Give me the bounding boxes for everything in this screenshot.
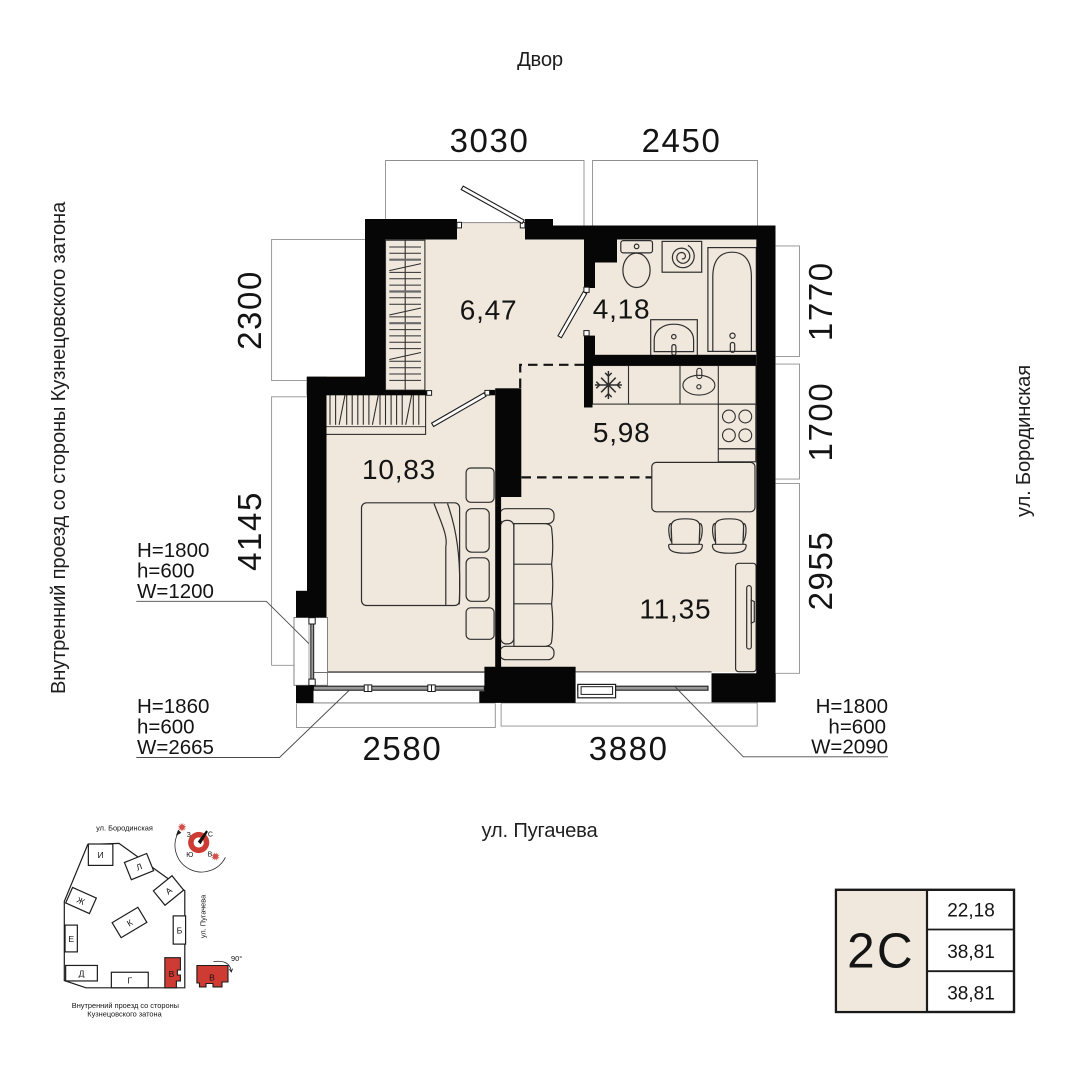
svg-text:90°: 90° bbox=[231, 954, 242, 963]
svg-text:Двор: Двор bbox=[517, 49, 563, 71]
svg-text:22,18: 22,18 bbox=[947, 900, 995, 921]
svg-text:С: С bbox=[208, 832, 213, 839]
svg-text:3880: 3880 bbox=[589, 730, 669, 767]
svg-text:В: В bbox=[208, 851, 213, 858]
svg-text:2450: 2450 bbox=[642, 122, 722, 159]
svg-text:W=2090: W=2090 bbox=[811, 736, 888, 759]
svg-text:5,98: 5,98 bbox=[593, 417, 651, 448]
svg-text:6,47: 6,47 bbox=[460, 295, 518, 326]
svg-text:Внутренний проезд со стороны К: Внутренний проезд со стороны Кузнецовско… bbox=[48, 201, 70, 694]
svg-text:W=1200: W=1200 bbox=[137, 580, 214, 603]
svg-text:4,18: 4,18 bbox=[593, 294, 651, 325]
svg-text:H=1800: H=1800 bbox=[137, 539, 209, 562]
svg-text:2580: 2580 bbox=[362, 730, 442, 767]
svg-text:ул. Бородинская: ул. Бородинская bbox=[1013, 365, 1035, 517]
svg-text:Ю: Ю bbox=[186, 852, 193, 859]
svg-text:h=600: h=600 bbox=[137, 716, 195, 739]
svg-text:H=1860: H=1860 bbox=[137, 695, 209, 718]
svg-text:ул. Бородинская: ул. Бородинская bbox=[96, 824, 153, 833]
svg-text:38,81: 38,81 bbox=[947, 984, 995, 1005]
svg-text:4145: 4145 bbox=[231, 491, 268, 571]
svg-text:3030: 3030 bbox=[450, 122, 530, 159]
svg-text:1770: 1770 bbox=[802, 261, 839, 341]
svg-text:Е: Е bbox=[68, 934, 74, 944]
svg-text:З: З bbox=[187, 832, 191, 839]
svg-text:W=2665: W=2665 bbox=[137, 736, 214, 759]
svg-text:Б: Б bbox=[177, 925, 183, 935]
svg-text:Д: Д bbox=[79, 969, 85, 979]
svg-text:ул. Пугачева: ул. Пугачева bbox=[199, 894, 208, 938]
svg-text:И: И bbox=[98, 850, 104, 860]
svg-text:1700: 1700 bbox=[802, 382, 839, 462]
svg-text:2955: 2955 bbox=[802, 531, 839, 611]
svg-text:ул. Пугачева: ул. Пугачева bbox=[481, 820, 598, 842]
svg-text:38,81: 38,81 bbox=[947, 942, 995, 963]
svg-text:11,35: 11,35 bbox=[639, 594, 711, 625]
svg-text:h=600: h=600 bbox=[137, 560, 195, 583]
svg-text:Внутренний проезд со стороны: Внутренний проезд со стороны bbox=[72, 1001, 179, 1010]
svg-text:2300: 2300 bbox=[231, 270, 268, 350]
svg-text:В: В bbox=[209, 973, 215, 983]
svg-text:В: В bbox=[169, 969, 175, 979]
svg-text:Г: Г bbox=[127, 975, 132, 985]
svg-text:Кузнецовского затона: Кузнецовского затона bbox=[87, 1010, 162, 1019]
svg-text:2С: 2С bbox=[847, 924, 915, 979]
svg-text:10,83: 10,83 bbox=[362, 454, 436, 485]
